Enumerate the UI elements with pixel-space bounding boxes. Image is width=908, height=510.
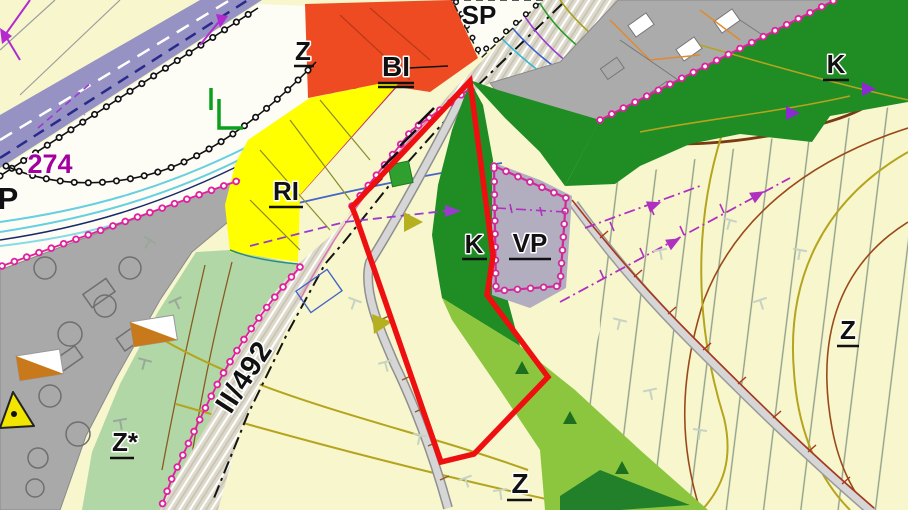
label-sp: SP bbox=[462, 0, 497, 30]
label-k-right: K bbox=[827, 49, 846, 79]
label-p: P bbox=[0, 181, 18, 216]
label-z-right: Z bbox=[840, 315, 856, 345]
label-z-star: Z* bbox=[112, 427, 139, 457]
label-vp: VP bbox=[513, 228, 548, 258]
label-k-center: K bbox=[465, 229, 484, 259]
map-canvas: SP Z BI 274 P RI K VP K Z Z* Z II/492 bbox=[0, 0, 908, 510]
label-ri: RI bbox=[273, 176, 299, 206]
label-z-top: Z bbox=[295, 36, 311, 66]
zoning-map: SP Z BI 274 P RI K VP K Z Z* Z II/492 bbox=[0, 0, 908, 510]
label-bi: BI bbox=[382, 51, 410, 82]
label-274: 274 bbox=[27, 149, 72, 179]
label-z-bottom: Z bbox=[511, 468, 528, 499]
